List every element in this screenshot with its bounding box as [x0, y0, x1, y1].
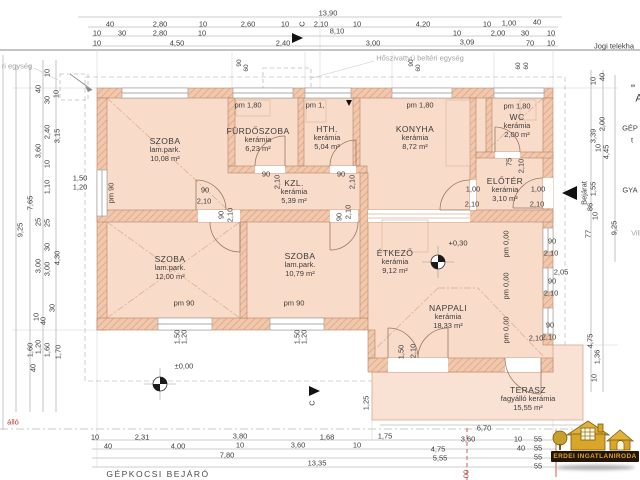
dim-label: 2,10 — [542, 333, 557, 341]
dim-label: 4,50 — [170, 39, 185, 47]
room-label-furdoszoba: FÜRDŐSZOBAkerámia6,23 m² — [226, 126, 289, 154]
dim-label: 10 — [91, 433, 99, 441]
dim-label: 40 — [39, 317, 47, 325]
dim-label: 60 — [244, 64, 251, 71]
dim-label: 30 — [43, 243, 51, 251]
dim-label: 90 — [548, 277, 556, 285]
room-label-szoba-3: SZOBAlam.park.10,79 m² — [285, 251, 316, 279]
logo-houses-icon — [551, 420, 639, 452]
dim-label: 4,00 — [171, 442, 186, 450]
dim-label: 10 — [93, 29, 101, 37]
room-ar: 5,39 m² — [281, 197, 308, 206]
dim-label: 4,75 — [431, 445, 446, 453]
dim-label: 1,75 — [378, 432, 393, 440]
room-ar: 10,08 m² — [150, 155, 181, 164]
dim-label: 1,00 — [466, 185, 481, 193]
room-label-konyha: KONYHAkerámia8,72 m² — [396, 124, 434, 152]
dim-label: 1,68 — [320, 433, 335, 441]
dim-label: 3,00 — [34, 259, 42, 274]
dim-label: 55 — [534, 453, 542, 461]
room-label-kozlekedo: KZL.kerámia5,39 m² — [281, 178, 308, 206]
dim-label: 30 — [48, 304, 56, 312]
dim-label: 30 — [521, 29, 529, 37]
dim-label: 2,40 — [276, 39, 291, 47]
dim-label: 2,10 — [517, 159, 525, 174]
dim-label: 3,39 — [589, 129, 597, 144]
dim-label: 30 — [43, 96, 51, 104]
agency-logo: ERDEI INGATLANIRODA — [551, 420, 639, 476]
dim-label: 10 — [281, 20, 289, 28]
dim-label: GÉP — [622, 124, 638, 132]
dim-label: 4,75 — [586, 334, 594, 349]
dim-label: 90 — [548, 237, 556, 245]
dim-label: 10 — [93, 39, 101, 47]
dim-label: 1,70 — [54, 345, 62, 360]
dim-label: 10 — [353, 20, 361, 28]
dim-label: pm 0,00 — [502, 316, 510, 343]
dim-label: A — [635, 94, 640, 105]
dim-label: 1,20 — [34, 340, 42, 355]
dim-label: 10 — [236, 441, 244, 449]
dim-label: 2,10 — [544, 249, 559, 257]
dim-label: 4,45 — [602, 145, 610, 160]
dim-label: 10 — [589, 77, 597, 85]
dim-label: 10 — [547, 39, 555, 47]
dim-label: 3,60 — [461, 435, 476, 443]
dim-label: 2,80 — [153, 29, 168, 37]
dim-label: 1,55 — [589, 182, 597, 197]
dim-label: 13,35 — [308, 459, 327, 467]
dim-label: 25 — [43, 219, 51, 227]
dim-label: 2,10 — [226, 208, 234, 223]
dim-label: 2,10 — [197, 197, 212, 205]
dim-label: 9,25 — [610, 221, 618, 236]
dim-label: 6,70 — [477, 424, 492, 432]
dim-label: 55 — [534, 435, 542, 443]
room-label-nappali: NAPPALIkerámia18,33 m² — [429, 303, 467, 331]
dim-label: 25 — [34, 218, 42, 226]
room-label-etkezo: ÉTKEZŐkerámia9,12 m² — [377, 248, 413, 276]
dim-label: 75 — [505, 158, 513, 166]
dim-label: 1,10 — [43, 180, 51, 195]
dim-label: 77 — [584, 230, 592, 238]
dim-label: 1,36 — [593, 350, 601, 365]
room-label-terasz: TERASZfagyálló kerámia15,55 m² — [501, 385, 556, 413]
dim-label: Bejárat — [580, 181, 588, 205]
room-label-szoba-2: SZOBAlam.park.12,00 m² — [155, 254, 186, 282]
dim-label: 55 — [534, 462, 542, 470]
dim-label: 40 — [34, 85, 42, 93]
dim-label: 2,80 — [153, 20, 168, 28]
dim-label: 10 — [52, 90, 60, 98]
dim-label: 2,10 — [314, 20, 329, 28]
dim-label: 40 — [29, 364, 37, 372]
dim-label: 10 — [198, 29, 206, 37]
dim-label: 3,00 — [43, 262, 51, 277]
entrance-arrow — [562, 186, 577, 200]
dim-label: 10 — [514, 435, 522, 443]
dim-label: 2,10 — [273, 175, 281, 190]
room-ar: 6,23 m² — [226, 145, 289, 154]
dim-label: 1,00 — [502, 19, 517, 27]
dim-label: 2,10 — [544, 289, 559, 297]
dim-label: pm 0,00 — [502, 272, 510, 299]
dim-label: 10 — [199, 20, 207, 28]
dim-label: pm 90 — [284, 299, 305, 307]
dim-label: 1,60 — [43, 343, 51, 358]
logo-shadow — [555, 465, 635, 470]
dim-label: 90 — [201, 186, 209, 194]
dim-label: 2,10 — [409, 344, 417, 359]
dim-label: pm 0,00 — [502, 230, 510, 257]
dim-label: 4,30 — [53, 251, 61, 266]
room-ar: 18,33 m² — [429, 322, 467, 331]
dim-label: 1,50 — [73, 174, 88, 182]
dim-label: 40 — [104, 442, 112, 450]
dim-label: 10 — [43, 160, 51, 168]
dim-label: Vill — [631, 229, 640, 237]
room-ar: 8,72 m² — [396, 143, 434, 152]
dim-label: 2,31 — [135, 433, 150, 441]
dim-label: 7,80 — [220, 451, 235, 459]
dim-label: pm 1,80 — [406, 101, 433, 109]
dim-label: 10 — [43, 69, 51, 77]
dim-label: 00 — [462, 470, 470, 478]
dim-label: 3,80 — [233, 432, 248, 440]
dim-label: 2,00 — [598, 117, 606, 132]
room-label-hth: HTH.kerámia5,04 m² — [314, 124, 341, 152]
dim-label: ri egység — [2, 62, 32, 70]
room-ar: 3,10 m² — [487, 195, 523, 204]
room-label-eloter: ELŐTÉRkerámia3,10 m² — [487, 176, 523, 204]
dim-label: pm 90 — [174, 299, 195, 307]
dim-label: álló — [7, 418, 19, 426]
dim-label: 40 — [517, 444, 525, 452]
dim-label: 13,90 — [319, 9, 338, 17]
dim-label: +0,30 — [449, 239, 468, 247]
room-ar: 5,04 m² — [314, 143, 341, 152]
room-ar: 10,79 m² — [285, 270, 316, 279]
dim-label: C — [298, 21, 306, 26]
dim-label: 2,60 — [241, 20, 256, 28]
dim-label: 2,10 — [530, 200, 545, 208]
dim-label: 10 — [353, 441, 361, 449]
dim-label: 3,15 — [53, 129, 61, 144]
dim-label: 3,09 — [460, 38, 475, 46]
dim-label: 3,60 — [34, 144, 42, 159]
dim-label: C — [308, 400, 316, 405]
level-marker-zero — [144, 368, 176, 400]
dim-label: 40 — [106, 20, 114, 28]
dim-label: 1,20 — [73, 183, 88, 191]
dim-label: 7,65 — [26, 196, 34, 211]
dim-label: 2,10 — [465, 200, 480, 208]
dim-label: Hőszivattyú beltéri egység — [376, 54, 464, 62]
dim-label: ±0,00 — [175, 362, 194, 370]
dim-label: 10 — [590, 374, 598, 382]
dim-label: 55 — [534, 444, 542, 452]
room-label-szoba-1: SZOBAlam.park.10,08 m² — [150, 136, 181, 164]
dim-label: 1,50 — [397, 345, 405, 360]
dim-label: 1,20 — [180, 330, 188, 345]
dim-label: 10 — [483, 20, 491, 28]
room-ar: 15,55 m² — [501, 404, 556, 413]
room-label-wc: WCkerámia2,00 m² — [504, 112, 531, 140]
dim-label: 1,25 — [362, 396, 370, 411]
dim-label: 2,40 — [43, 125, 51, 140]
dim-label: 90 — [262, 170, 270, 178]
dim-label: 3,60 — [291, 441, 306, 449]
dim-label: 90 — [546, 321, 554, 329]
dim-label: 1,00 — [531, 185, 546, 193]
dim-label: 2,10 — [348, 175, 356, 190]
dim-label: pm 1, — [306, 101, 325, 109]
dim-label: 1,20 — [300, 330, 308, 345]
dim-label: 9,25 — [16, 223, 24, 238]
dim-label: 30 — [118, 29, 126, 37]
dim-label: 70 — [526, 39, 534, 47]
floorplan-canvas: ERDEI INGATLANIRODA 13,90402,80102,60102… — [0, 0, 640, 480]
dim-label: 5,55 — [433, 454, 448, 462]
dim-label: 8,10 — [330, 27, 345, 35]
dim-label: 10 — [547, 29, 555, 37]
dim-label: 90 — [335, 213, 343, 221]
dim-label: 2,00 — [491, 29, 506, 37]
dim-label: 90 — [217, 211, 225, 219]
dim-label: 60 — [416, 64, 423, 71]
dim-label: pm 1,80 — [234, 101, 261, 109]
room-ar: 2,00 m² — [504, 131, 531, 140]
dim-label: pm 1,80 — [503, 102, 530, 110]
dim-label: 2,10 — [344, 205, 352, 220]
dim-label: 4,20 — [416, 20, 431, 28]
dim-label: 90 — [337, 170, 345, 178]
dim-label: 2,10 — [529, 334, 544, 342]
dim-label: 40 — [533, 18, 541, 26]
dim-label: 10 — [591, 212, 599, 220]
dim-label: t — [631, 136, 633, 144]
room-ar: 9,12 m² — [377, 267, 413, 276]
logo-banner-text: ERDEI INGATLANIRODA — [551, 451, 639, 462]
dim-label: GYA — [622, 186, 637, 194]
dim-label: GÉPKOCSI BEJÁRÓ — [106, 470, 209, 479]
dim-label: Jogi telekha — [594, 42, 634, 50]
dim-label: pm 90 — [107, 183, 115, 204]
dim-label: 10 — [453, 29, 461, 37]
dim-label: 40 — [598, 73, 606, 81]
dim-label: 60 — [524, 62, 531, 69]
dim-label: 3,00 — [366, 39, 381, 47]
room-ar: 12,00 m² — [155, 273, 186, 282]
dim-label: 60 — [516, 62, 523, 69]
dim-label: 2,05 — [554, 268, 569, 276]
